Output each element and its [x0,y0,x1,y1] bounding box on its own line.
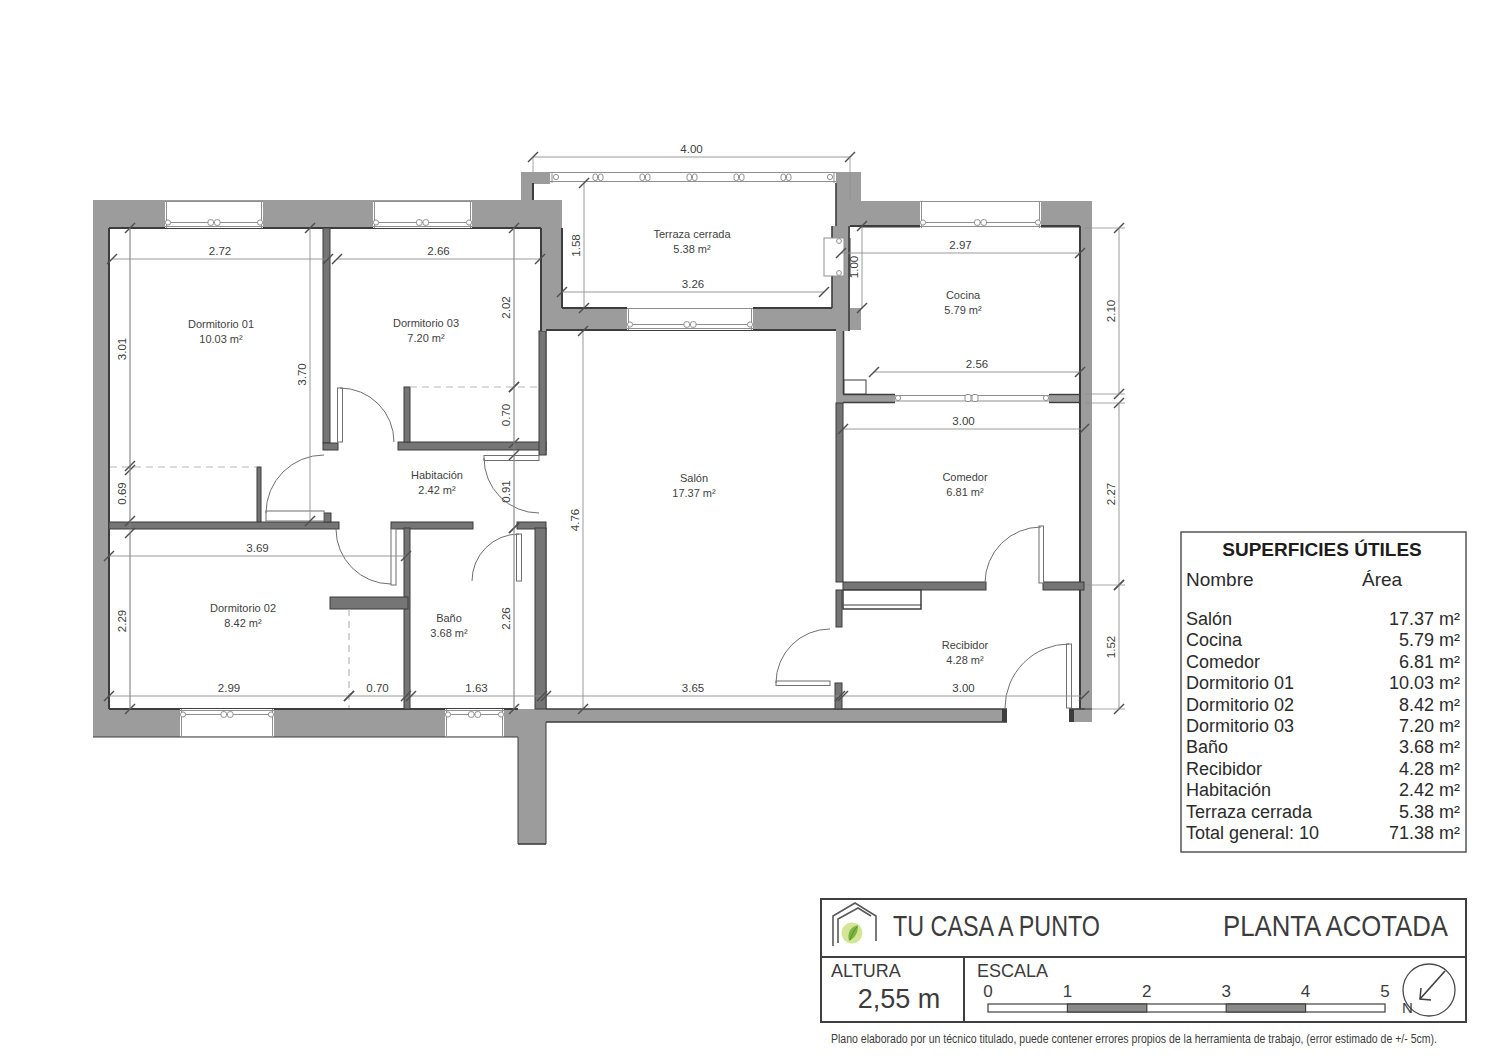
svg-text:Baño: Baño [1186,737,1228,757]
svg-text:3.00: 3.00 [952,415,974,427]
svg-text:Dormitorio 03: Dormitorio 03 [1186,716,1294,736]
svg-text:6.81 m²: 6.81 m² [1399,652,1460,672]
svg-text:1.63: 1.63 [465,682,487,694]
svg-text:3: 3 [1221,982,1230,1001]
svg-text:2.10: 2.10 [1105,300,1117,322]
svg-text:SUPERFICIES ÚTILES: SUPERFICIES ÚTILES [1222,539,1422,560]
svg-text:4.28 m²: 4.28 m² [946,654,984,666]
svg-text:2.42 m²: 2.42 m² [1399,780,1460,800]
svg-text:5.79 m²: 5.79 m² [1399,630,1460,650]
svg-text:Dormitorio 01: Dormitorio 01 [188,318,254,330]
svg-text:5.38 m²: 5.38 m² [1399,802,1460,822]
svg-text:3.68 m²: 3.68 m² [430,627,468,639]
svg-text:10.03 m²: 10.03 m² [1389,673,1460,693]
svg-text:71.38 m²: 71.38 m² [1389,823,1460,843]
svg-text:Nombre: Nombre [1186,569,1254,590]
svg-text:2.26: 2.26 [500,607,512,629]
svg-text:8.42 m²: 8.42 m² [224,617,262,629]
svg-text:5: 5 [1380,982,1389,1001]
svg-text:Terraza cerrada: Terraza cerrada [1186,802,1313,822]
svg-text:Recibidor: Recibidor [1186,759,1262,779]
svg-text:3.70: 3.70 [296,363,308,385]
svg-text:Recibidor: Recibidor [942,639,989,651]
svg-text:10.03 m²: 10.03 m² [199,333,243,345]
svg-text:17.37 m²: 17.37 m² [1389,609,1460,629]
svg-text:ALTURA: ALTURA [831,961,901,981]
svg-text:Baño: Baño [436,612,462,624]
svg-text:1: 1 [1063,982,1072,1001]
svg-text:Salón: Salón [680,472,708,484]
svg-text:Total general: 10: Total general: 10 [1186,823,1319,843]
svg-text:Salón: Salón [1186,609,1232,629]
svg-text:2.02: 2.02 [500,296,512,318]
svg-text:Terraza cerrada: Terraza cerrada [653,228,731,240]
svg-text:Plano elaborado por un técnico: Plano elaborado por un técnico titulado,… [831,1031,1437,1046]
svg-text:5.79 m²: 5.79 m² [944,304,982,316]
svg-text:3.65: 3.65 [682,682,704,694]
svg-text:4.28 m²: 4.28 m² [1399,759,1460,779]
svg-text:ESCALA: ESCALA [977,961,1048,981]
svg-text:17.37 m²: 17.37 m² [672,487,716,499]
svg-text:Cocina: Cocina [946,289,981,301]
svg-text:4.00: 4.00 [680,143,702,155]
svg-text:0.69: 0.69 [116,482,128,504]
svg-text:3.68 m²: 3.68 m² [1399,737,1460,757]
svg-text:8.42 m²: 8.42 m² [1399,695,1460,715]
svg-text:2.72: 2.72 [209,245,231,257]
svg-text:1.52: 1.52 [1105,636,1117,658]
svg-text:Habitación: Habitación [1186,780,1271,800]
svg-text:Habitación: Habitación [411,469,463,481]
svg-text:Dormitorio 03: Dormitorio 03 [393,317,459,329]
svg-text:4: 4 [1301,982,1310,1001]
svg-text:3.01: 3.01 [116,338,128,360]
svg-text:2.27: 2.27 [1105,483,1117,505]
svg-text:1.58: 1.58 [570,234,582,256]
svg-text:1.00: 1.00 [848,256,860,278]
svg-text:TU CASA A PUNTO: TU CASA A PUNTO [893,909,1100,942]
svg-text:4.76: 4.76 [569,509,581,531]
svg-text:3.26: 3.26 [682,278,704,290]
svg-text:2.42 m²: 2.42 m² [418,484,456,496]
svg-text:N: N [1402,999,1413,1016]
svg-text:3.00: 3.00 [952,682,974,694]
svg-text:2.29: 2.29 [116,610,128,632]
svg-text:2.97: 2.97 [949,239,971,251]
svg-text:0.70: 0.70 [500,404,512,426]
svg-text:6.81 m²: 6.81 m² [946,486,984,498]
svg-text:2.66: 2.66 [427,245,449,257]
svg-text:Comedor: Comedor [942,471,988,483]
svg-text:7.20 m²: 7.20 m² [1399,716,1460,736]
svg-text:0.70: 0.70 [366,682,388,694]
svg-text:Dormitorio 02: Dormitorio 02 [1186,695,1294,715]
svg-text:5.38 m²: 5.38 m² [673,243,711,255]
svg-text:Cocina: Cocina [1186,630,1243,650]
svg-text:0: 0 [983,982,992,1001]
svg-text:Dormitorio 01: Dormitorio 01 [1186,673,1294,693]
svg-text:Área: Área [1362,569,1403,590]
svg-text:7.20 m²: 7.20 m² [407,332,445,344]
svg-text:Comedor: Comedor [1186,652,1260,672]
svg-text:2,55 m: 2,55 m [858,984,941,1014]
svg-text:2.56: 2.56 [966,358,988,370]
svg-text:3.69: 3.69 [246,542,268,554]
svg-text:PLANTA ACOTADA: PLANTA ACOTADA [1223,909,1448,942]
svg-text:2: 2 [1142,982,1151,1001]
svg-text:0.91: 0.91 [500,480,512,502]
svg-text:Dormitorio 02: Dormitorio 02 [210,602,276,614]
svg-text:2.99: 2.99 [218,682,240,694]
